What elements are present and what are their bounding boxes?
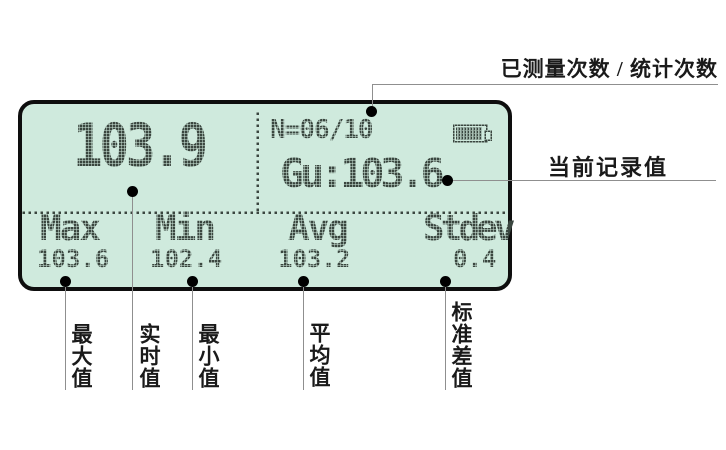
callout-line-avg	[303, 281, 304, 390]
stat-header-stdev: Stdev	[423, 211, 511, 247]
annotation-current-record: 当前记录值	[548, 150, 668, 182]
callout-line-min	[192, 281, 193, 390]
callout-dot-measure-count	[366, 106, 377, 117]
battery-icon	[453, 124, 488, 143]
callout-dot-stdev	[440, 276, 451, 287]
callout-dot-current-record	[442, 175, 453, 186]
callout-line-stdev	[445, 281, 446, 390]
callout-line-realtime	[132, 191, 133, 390]
lcd-display: 103.9 N=06/10 Gu:103.6 Max Min Avg Stdev…	[18, 100, 512, 291]
stat-header-avg: Avg	[288, 211, 347, 247]
annotation-stdev-value: 标准差值	[450, 301, 472, 389]
current-record-readout: Gu:103.6	[280, 154, 441, 194]
battery-terminal	[484, 130, 492, 141]
stat-value-avg: 103.2	[278, 247, 350, 271]
annotation-avg-value: 平均值	[308, 322, 330, 388]
callout-line-max	[65, 281, 66, 390]
stat-value-stdev: 0.4	[453, 247, 496, 271]
annotation-measure-count: 已测量次数 / 统计次数	[501, 53, 718, 83]
measure-count-readout: N=06/10	[270, 117, 373, 143]
callout-dot-min	[187, 276, 198, 287]
callout-dot-realtime	[127, 186, 138, 197]
gloss-meter-display-diagram: 103.9 N=06/10 Gu:103.6 Max Min Avg Stdev…	[0, 0, 726, 450]
callout-dot-max	[60, 276, 71, 287]
callout-line-measure-count-horizontal	[372, 84, 718, 85]
battery-fill	[456, 127, 482, 140]
callout-dot-avg	[298, 276, 309, 287]
annotation-min-value: 最小值	[197, 323, 219, 389]
lcd-vertical-divider	[256, 112, 259, 211]
annotation-max-value: 最大值	[70, 323, 92, 389]
stat-value-max: 103.6	[37, 247, 109, 271]
annotation-realtime-value: 实时值	[138, 323, 160, 389]
main-reading: 103.9	[43, 116, 235, 176]
stat-value-min: 102.4	[150, 247, 222, 271]
stat-header-max: Max	[40, 211, 99, 247]
stat-header-min: Min	[155, 211, 214, 247]
